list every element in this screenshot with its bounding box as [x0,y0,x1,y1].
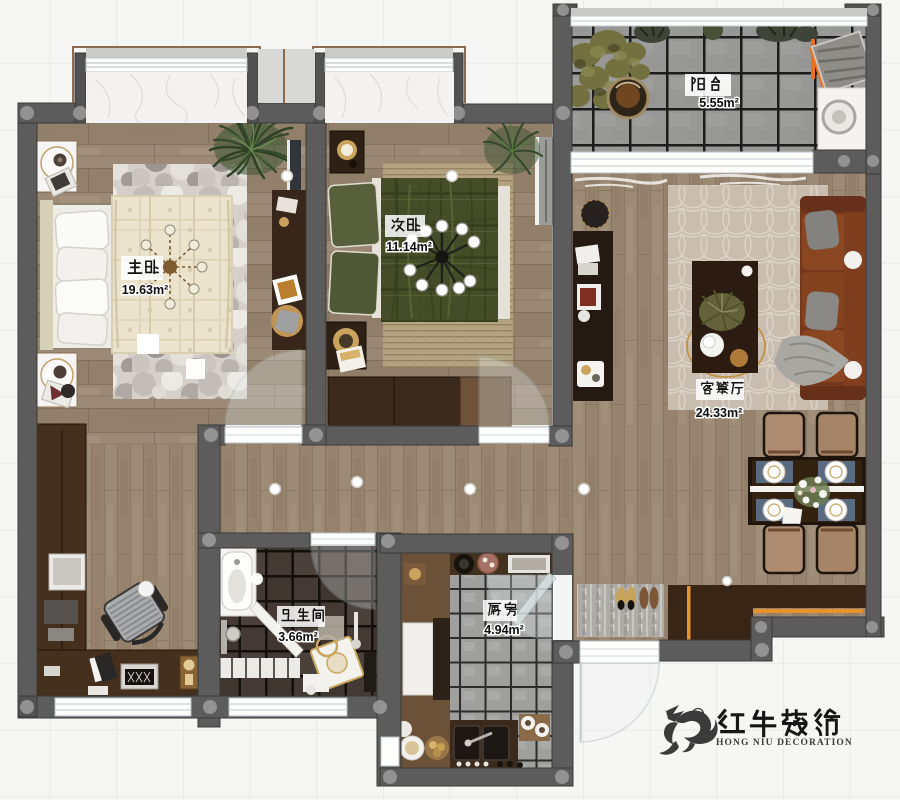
svg-text:3.66m²: 3.66m² [278,630,318,644]
svg-text:HONG NIU DECORATION: HONG NIU DECORATION [716,738,853,748]
svg-text:4.94m²: 4.94m² [484,623,524,637]
svg-text:19.63m²: 19.63m² [122,283,169,297]
svg-text:24.33m²: 24.33m² [696,406,743,420]
svg-text:R: R [695,710,702,720]
svg-text:11.14m²: 11.14m² [386,240,432,254]
svg-text:5.55m²: 5.55m² [699,96,739,110]
